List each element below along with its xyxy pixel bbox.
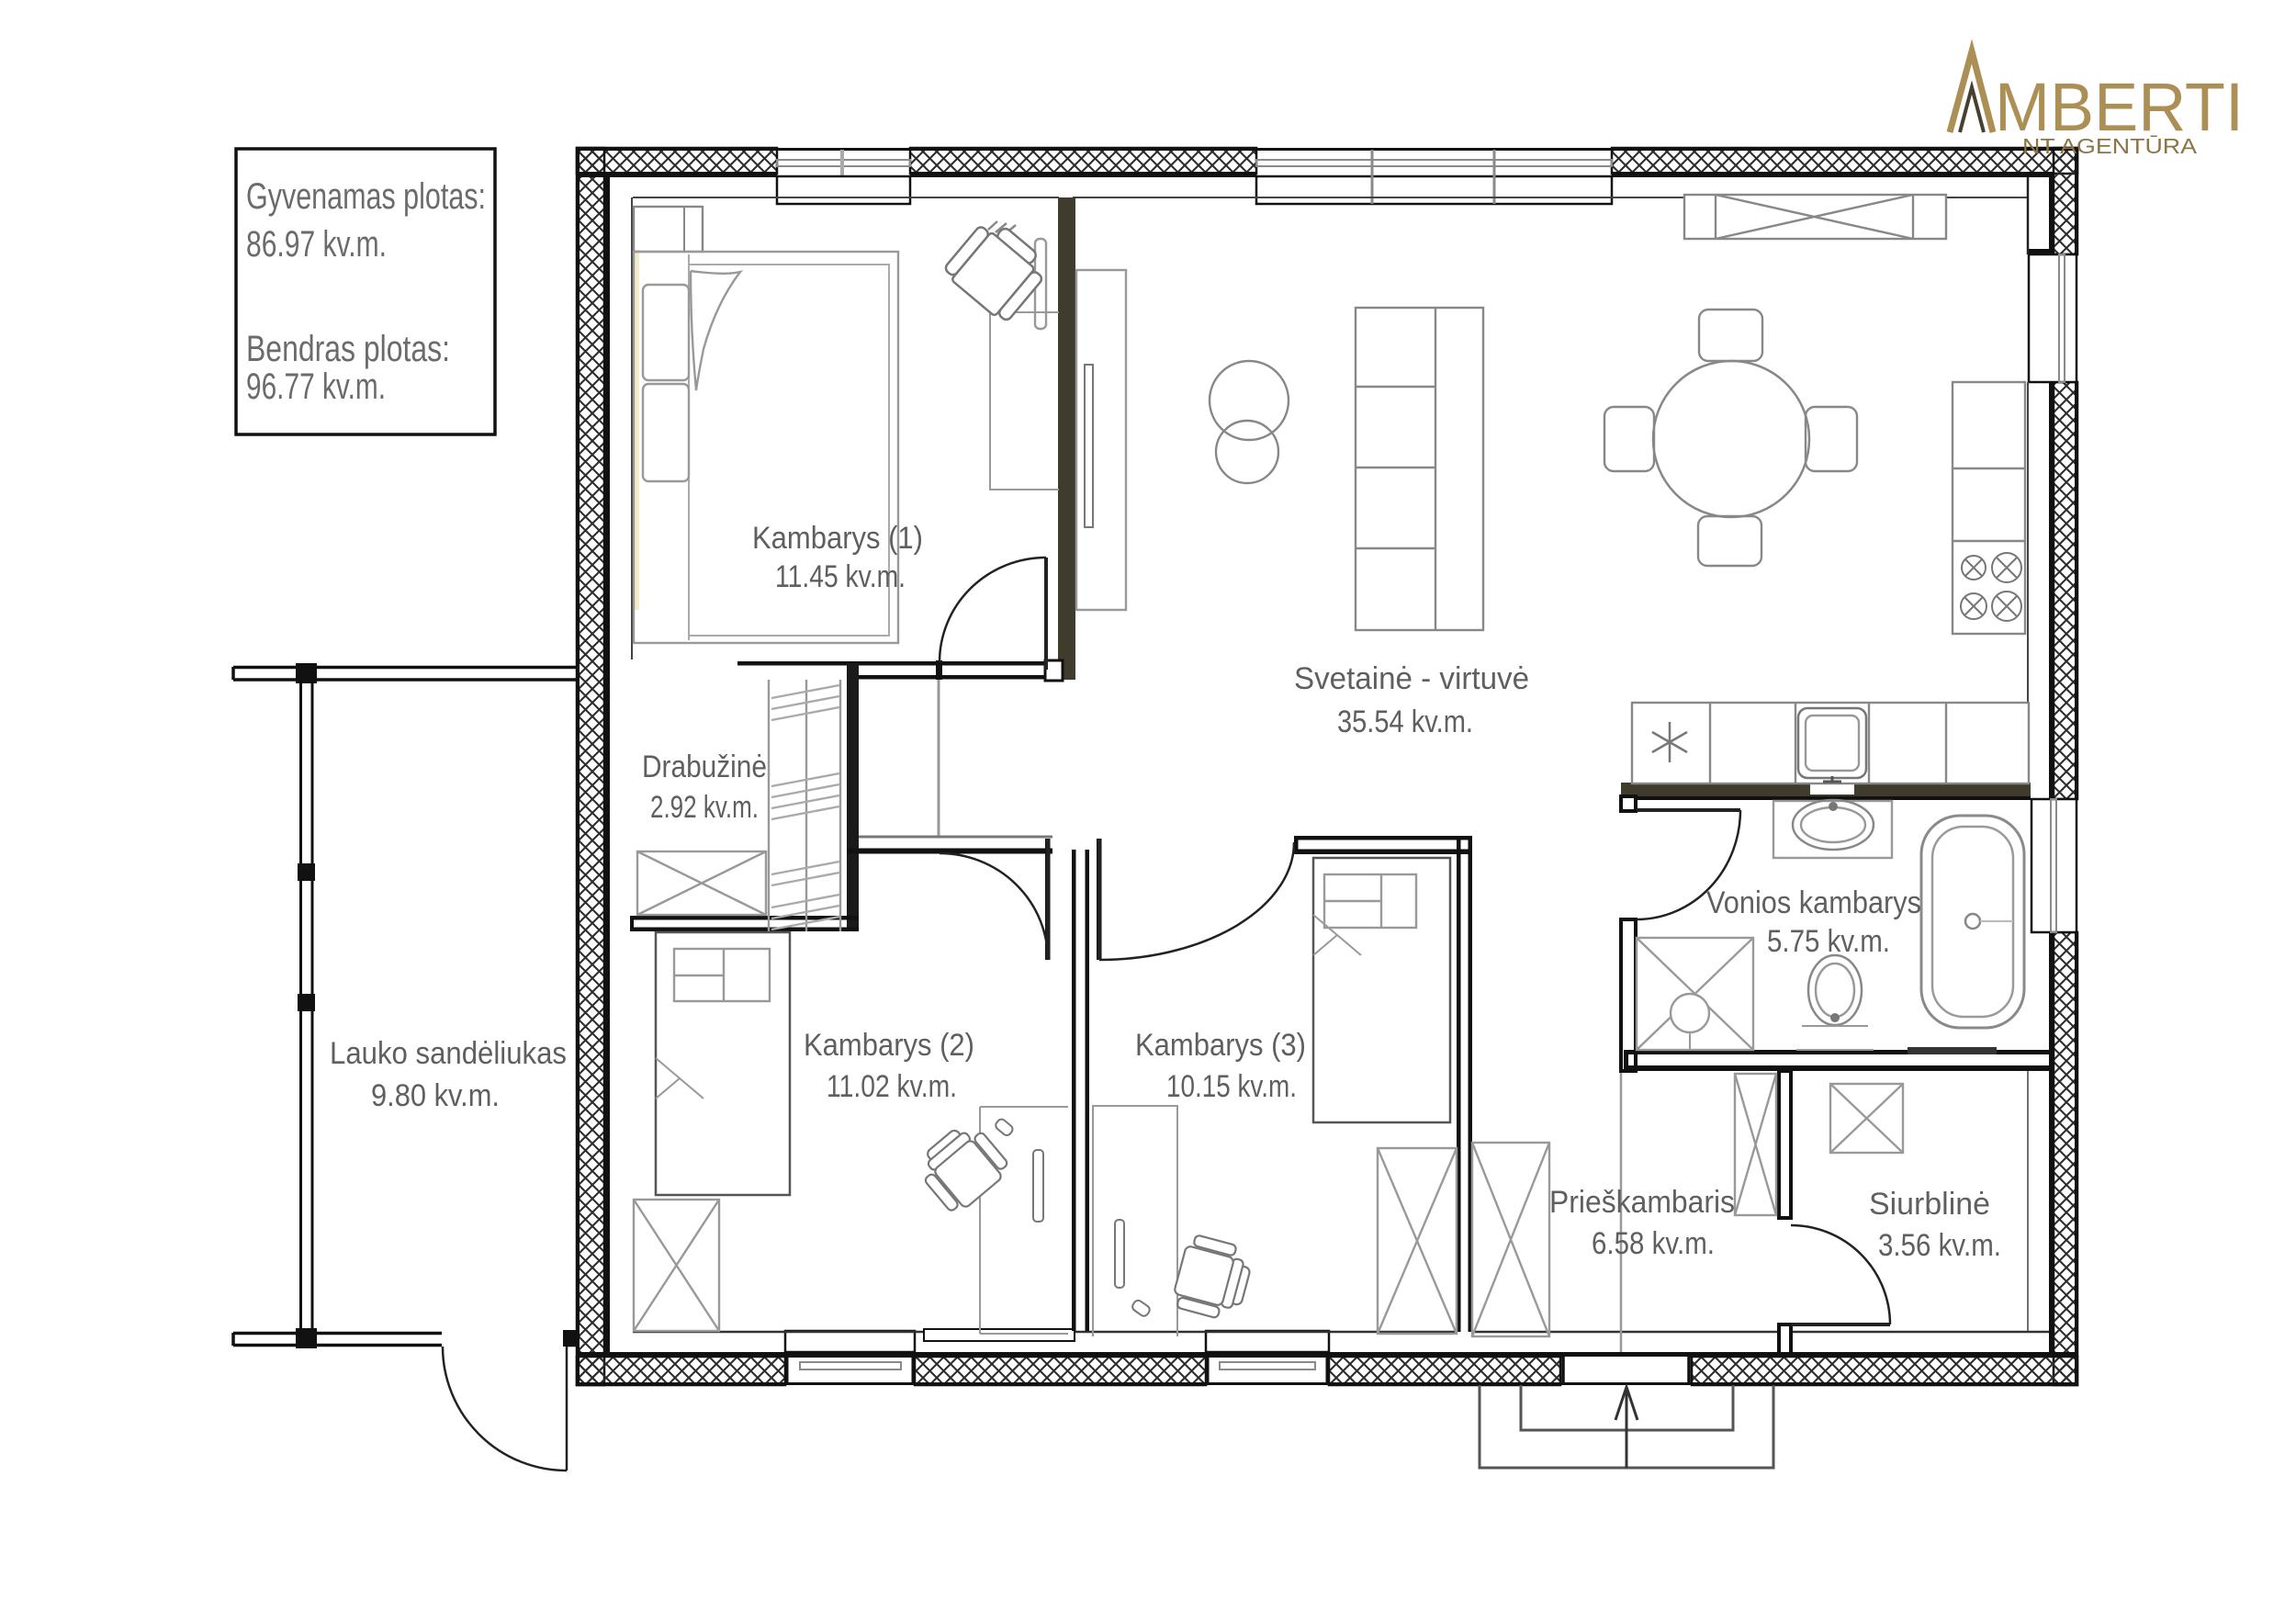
- svg-text:Drabužinė: Drabužinė: [642, 750, 767, 784]
- svg-text:Vonios kambarys: Vonios kambarys: [1706, 885, 1921, 920]
- svg-text:86.97 kv.m.: 86.97 kv.m.: [246, 224, 387, 265]
- svg-text:11.45 kv.m.: 11.45 kv.m.: [775, 559, 906, 594]
- svg-text:35.54 kv.m.: 35.54 kv.m.: [1337, 704, 1473, 739]
- svg-text:Kambarys (3): Kambarys (3): [1135, 1028, 1306, 1063]
- svg-text:6.58 kv.m.: 6.58 kv.m.: [1592, 1226, 1715, 1261]
- svg-text:5.75 kv.m.: 5.75 kv.m.: [1767, 924, 1890, 959]
- svg-text:96.77 kv.m.: 96.77 kv.m.: [246, 366, 386, 407]
- svg-text:2.92 kv.m.: 2.92 kv.m.: [650, 790, 759, 825]
- svg-text:Kambarys (2): Kambarys (2): [804, 1028, 974, 1063]
- svg-text:11.02 kv.m.: 11.02 kv.m.: [827, 1069, 957, 1104]
- svg-text:Svetainė - virtuvė: Svetainė - virtuvė: [1294, 661, 1529, 696]
- svg-text:Prieškambaris: Prieškambaris: [1549, 1185, 1735, 1220]
- svg-text:Siurblinė: Siurblinė: [1869, 1187, 1990, 1222]
- svg-text:NT AGENTŪRA: NT AGENTŪRA: [2022, 134, 2198, 158]
- svg-text:Kambarys (1): Kambarys (1): [752, 521, 923, 556]
- svg-text:Bendras plotas:: Bendras plotas:: [246, 329, 450, 369]
- svg-text:3.56 kv.m.: 3.56 kv.m.: [1878, 1228, 2001, 1263]
- svg-text:Lauko sandėliukas: Lauko sandėliukas: [330, 1036, 567, 1071]
- svg-text:10.15 kv.m.: 10.15 kv.m.: [1166, 1069, 1297, 1104]
- svg-text:Gyvenamas plotas:: Gyvenamas plotas:: [246, 176, 486, 217]
- svg-text:9.80 kv.m.: 9.80 kv.m.: [371, 1078, 500, 1113]
